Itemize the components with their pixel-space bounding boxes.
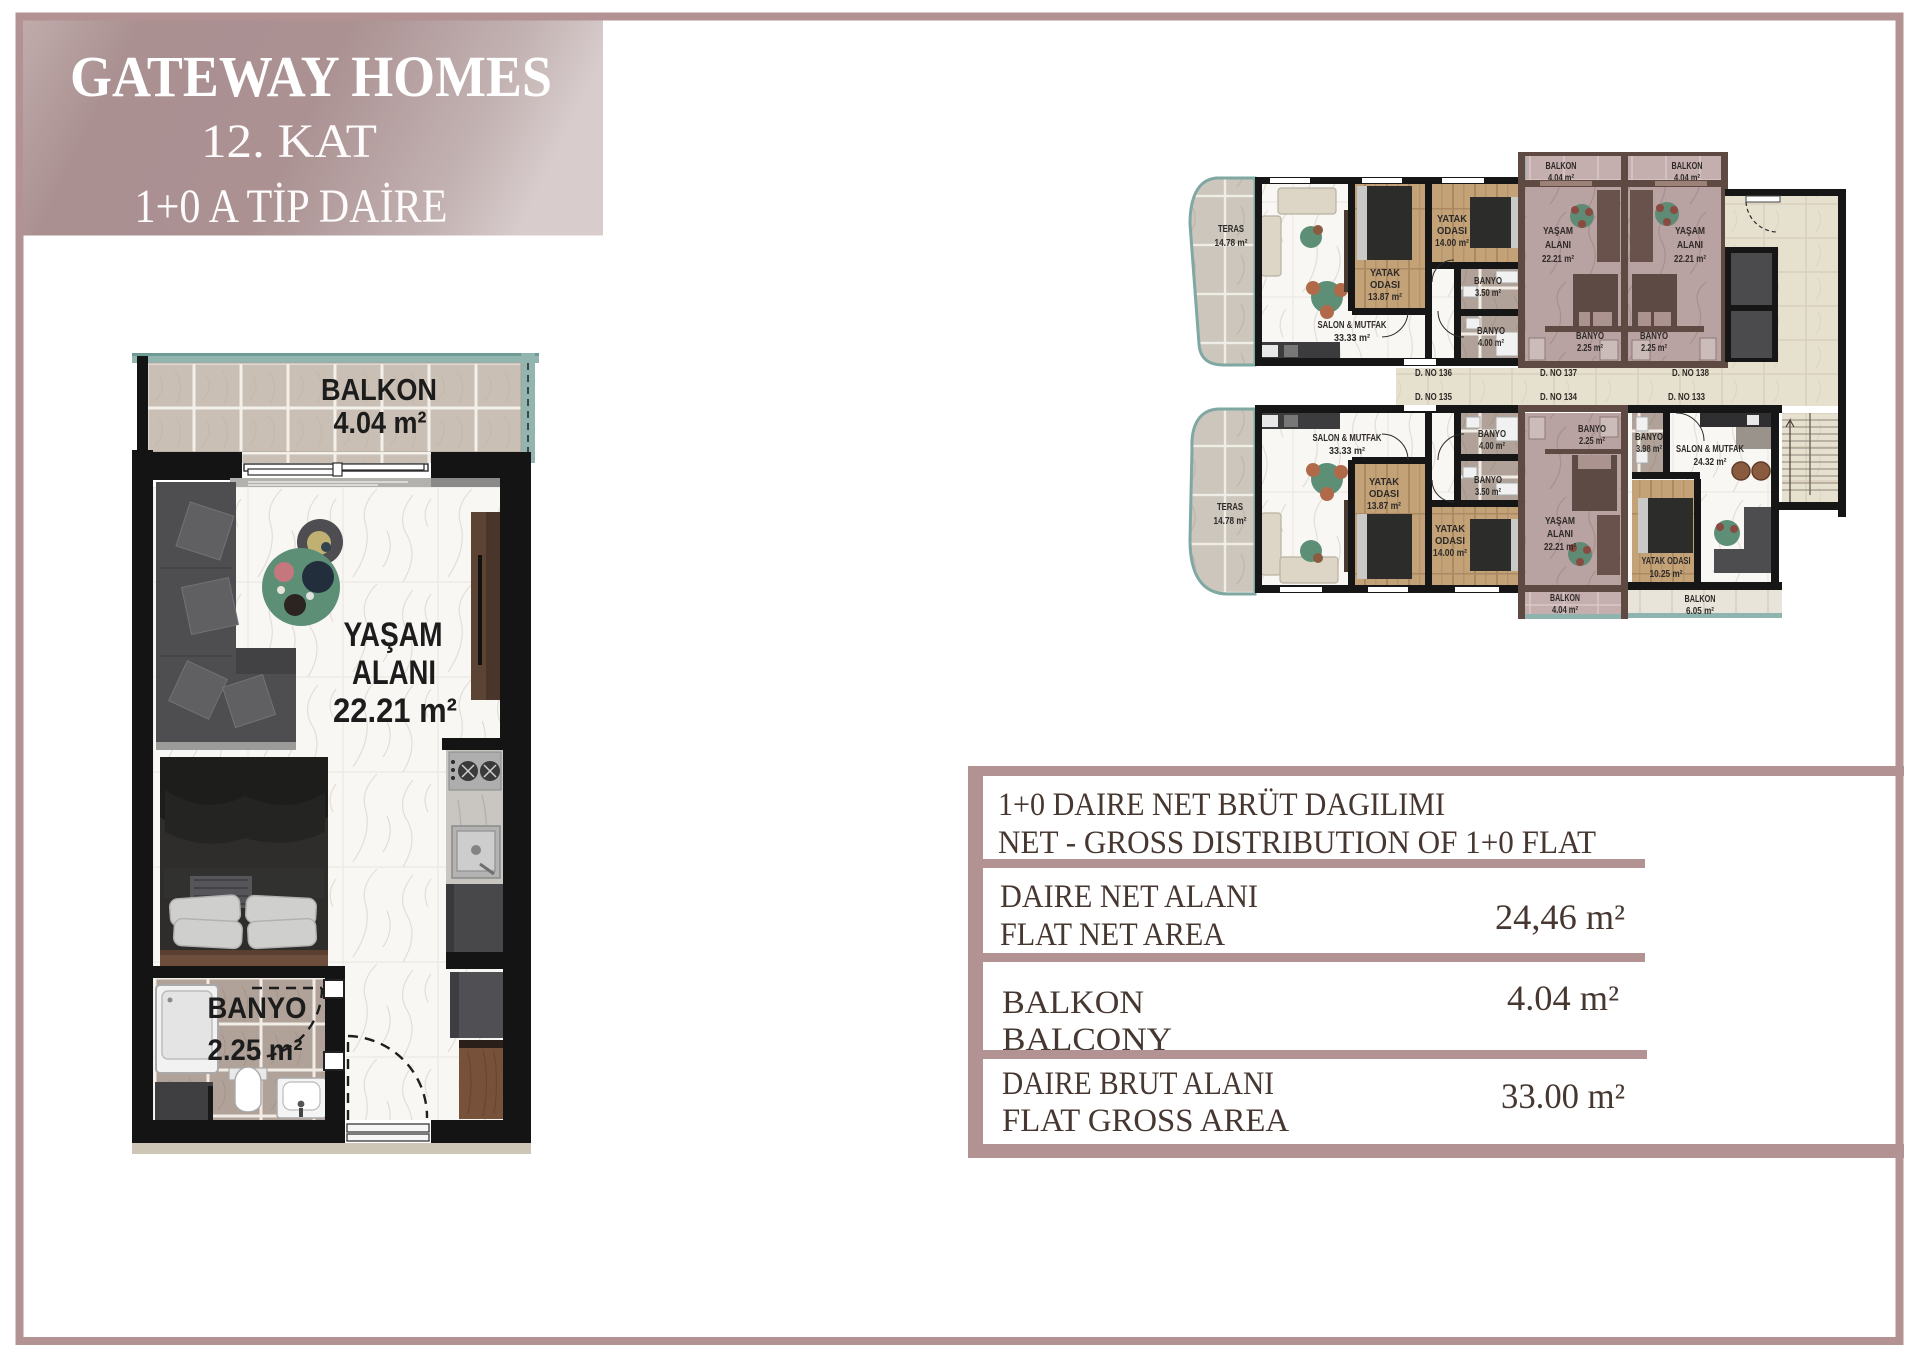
svg-text:3.50 m²: 3.50 m² [1475,288,1502,299]
svg-text:ODASI: ODASI [1435,535,1465,547]
svg-text:BALKON: BALKON [1672,160,1703,172]
svg-text:D. NO 136: D. NO 136 [1415,367,1452,379]
svg-text:4.00 m²: 4.00 m² [1478,338,1505,349]
svg-text:33.33 m²: 33.33 m² [1334,333,1371,344]
svg-text:BANYO: BANYO [1474,275,1502,287]
svg-text:TERAS: TERAS [1217,501,1243,513]
svg-text:4.04 m²: 4.04 m² [334,405,427,440]
svg-text:BANYO: BANYO [1578,423,1606,435]
svg-text:22.21 m²: 22.21 m² [1542,254,1575,265]
svg-text:2.25 m²: 2.25 m² [1641,343,1668,354]
svg-text:YATAK ODASI: YATAK ODASI [1642,555,1691,567]
svg-text:SALON & MUTFAK: SALON & MUTFAK [1676,443,1744,455]
svg-text:BANYO: BANYO [1477,325,1505,337]
svg-text:ODASI: ODASI [1369,488,1399,500]
svg-text:BANYO: BANYO [1478,428,1506,440]
svg-text:YAŞAM: YAŞAM [1543,225,1573,237]
svg-text:24,46 m²: 24,46 m² [1495,897,1625,937]
svg-text:3.98 m²: 3.98 m² [1636,444,1663,455]
svg-text:3.50 m²: 3.50 m² [1475,487,1502,498]
svg-text:2.25 m²: 2.25 m² [208,1034,303,1067]
svg-text:SALON & MUTFAK: SALON & MUTFAK [1313,432,1382,444]
svg-text:D. NO 135: D. NO 135 [1415,391,1452,403]
svg-text:D. NO 137: D. NO 137 [1540,367,1577,379]
svg-text:BANYO: BANYO [1474,474,1502,486]
svg-text:13.87 m²: 13.87 m² [1367,501,1402,512]
svg-text:22.21 m²: 22.21 m² [1544,542,1577,553]
svg-text:NET - GROSS DISTRIBUTION OF 1+: NET - GROSS DISTRIBUTION OF 1+0 FLAT [998,825,1596,861]
svg-text:BALKON: BALKON [1002,985,1144,1021]
svg-text:YAŞAM: YAŞAM [1675,225,1705,237]
svg-text:ODASI: ODASI [1370,279,1400,291]
svg-text:TERAS: TERAS [1218,223,1244,235]
svg-text:1+0 A TİP DAİRE: 1+0 A TİP DAİRE [135,180,448,233]
svg-text:D. NO 138: D. NO 138 [1672,367,1709,379]
svg-text:GATEWAY HOMES: GATEWAY HOMES [70,44,552,109]
svg-text:4.04 m²: 4.04 m² [1552,605,1579,616]
svg-text:10.25 m²: 10.25 m² [1650,569,1684,580]
svg-text:14.78 m²: 14.78 m² [1215,238,1249,249]
svg-text:4.00 m²: 4.00 m² [1479,441,1506,452]
svg-text:D. NO 134: D. NO 134 [1540,391,1577,403]
svg-text:6.05 m²: 6.05 m² [1686,606,1715,617]
svg-text:2.25 m²: 2.25 m² [1577,343,1604,354]
svg-text:DAIRE NET ALANI: DAIRE NET ALANI [1000,879,1258,915]
svg-text:ODASI: ODASI [1437,225,1467,237]
svg-text:ALANI: ALANI [1547,528,1573,540]
svg-text:4.04 m²: 4.04 m² [1507,978,1619,1018]
svg-text:22.21 m²: 22.21 m² [1674,254,1707,265]
svg-text:ALANI: ALANI [352,654,436,692]
svg-text:SALON & MUTFAK: SALON & MUTFAK [1318,319,1387,331]
svg-text:BALKON: BALKON [1685,593,1716,605]
svg-text:22.21 m²: 22.21 m² [333,692,457,730]
svg-text:D. NO 133: D. NO 133 [1668,391,1705,403]
svg-text:BALKON: BALKON [1546,160,1577,172]
svg-text:1+0 DAIRE NET BRÜT DAGILIMI: 1+0 DAIRE NET BRÜT DAGILIMI [998,787,1445,823]
svg-text:ALANI: ALANI [1545,239,1571,251]
svg-text:33.00 m²: 33.00 m² [1501,1076,1625,1116]
svg-text:BALKON: BALKON [321,372,437,407]
svg-text:YAŞAM: YAŞAM [1545,515,1575,527]
svg-text:2.25 m²: 2.25 m² [1579,436,1606,447]
svg-text:FLAT NET AREA: FLAT NET AREA [1000,917,1225,953]
svg-text:FLAT GROSS AREA: FLAT GROSS AREA [1002,1103,1289,1139]
svg-text:33.33 m²: 33.33 m² [1329,446,1366,457]
svg-text:14.00 m²: 14.00 m² [1435,238,1470,249]
svg-text:BANYO: BANYO [1635,431,1663,443]
svg-text:14.78 m²: 14.78 m² [1214,516,1248,527]
svg-text:YAŞAM: YAŞAM [344,616,443,654]
svg-text:YATAK: YATAK [1369,476,1399,488]
svg-text:14.00 m²: 14.00 m² [1433,548,1468,559]
svg-text:ALANI: ALANI [1677,239,1703,251]
svg-text:DAIRE BRUT ALANI: DAIRE BRUT ALANI [1002,1066,1274,1102]
svg-text:13.87 m²: 13.87 m² [1368,292,1403,303]
svg-text:YATAK: YATAK [1435,523,1465,535]
svg-text:BALKON: BALKON [1550,592,1580,604]
svg-text:YATAK: YATAK [1437,213,1467,225]
svg-text:YATAK: YATAK [1370,267,1400,279]
svg-text:24.32 m²: 24.32 m² [1694,457,1728,468]
svg-text:12. KAT: 12. KAT [201,115,377,168]
svg-text:BANYO: BANYO [208,992,307,1025]
